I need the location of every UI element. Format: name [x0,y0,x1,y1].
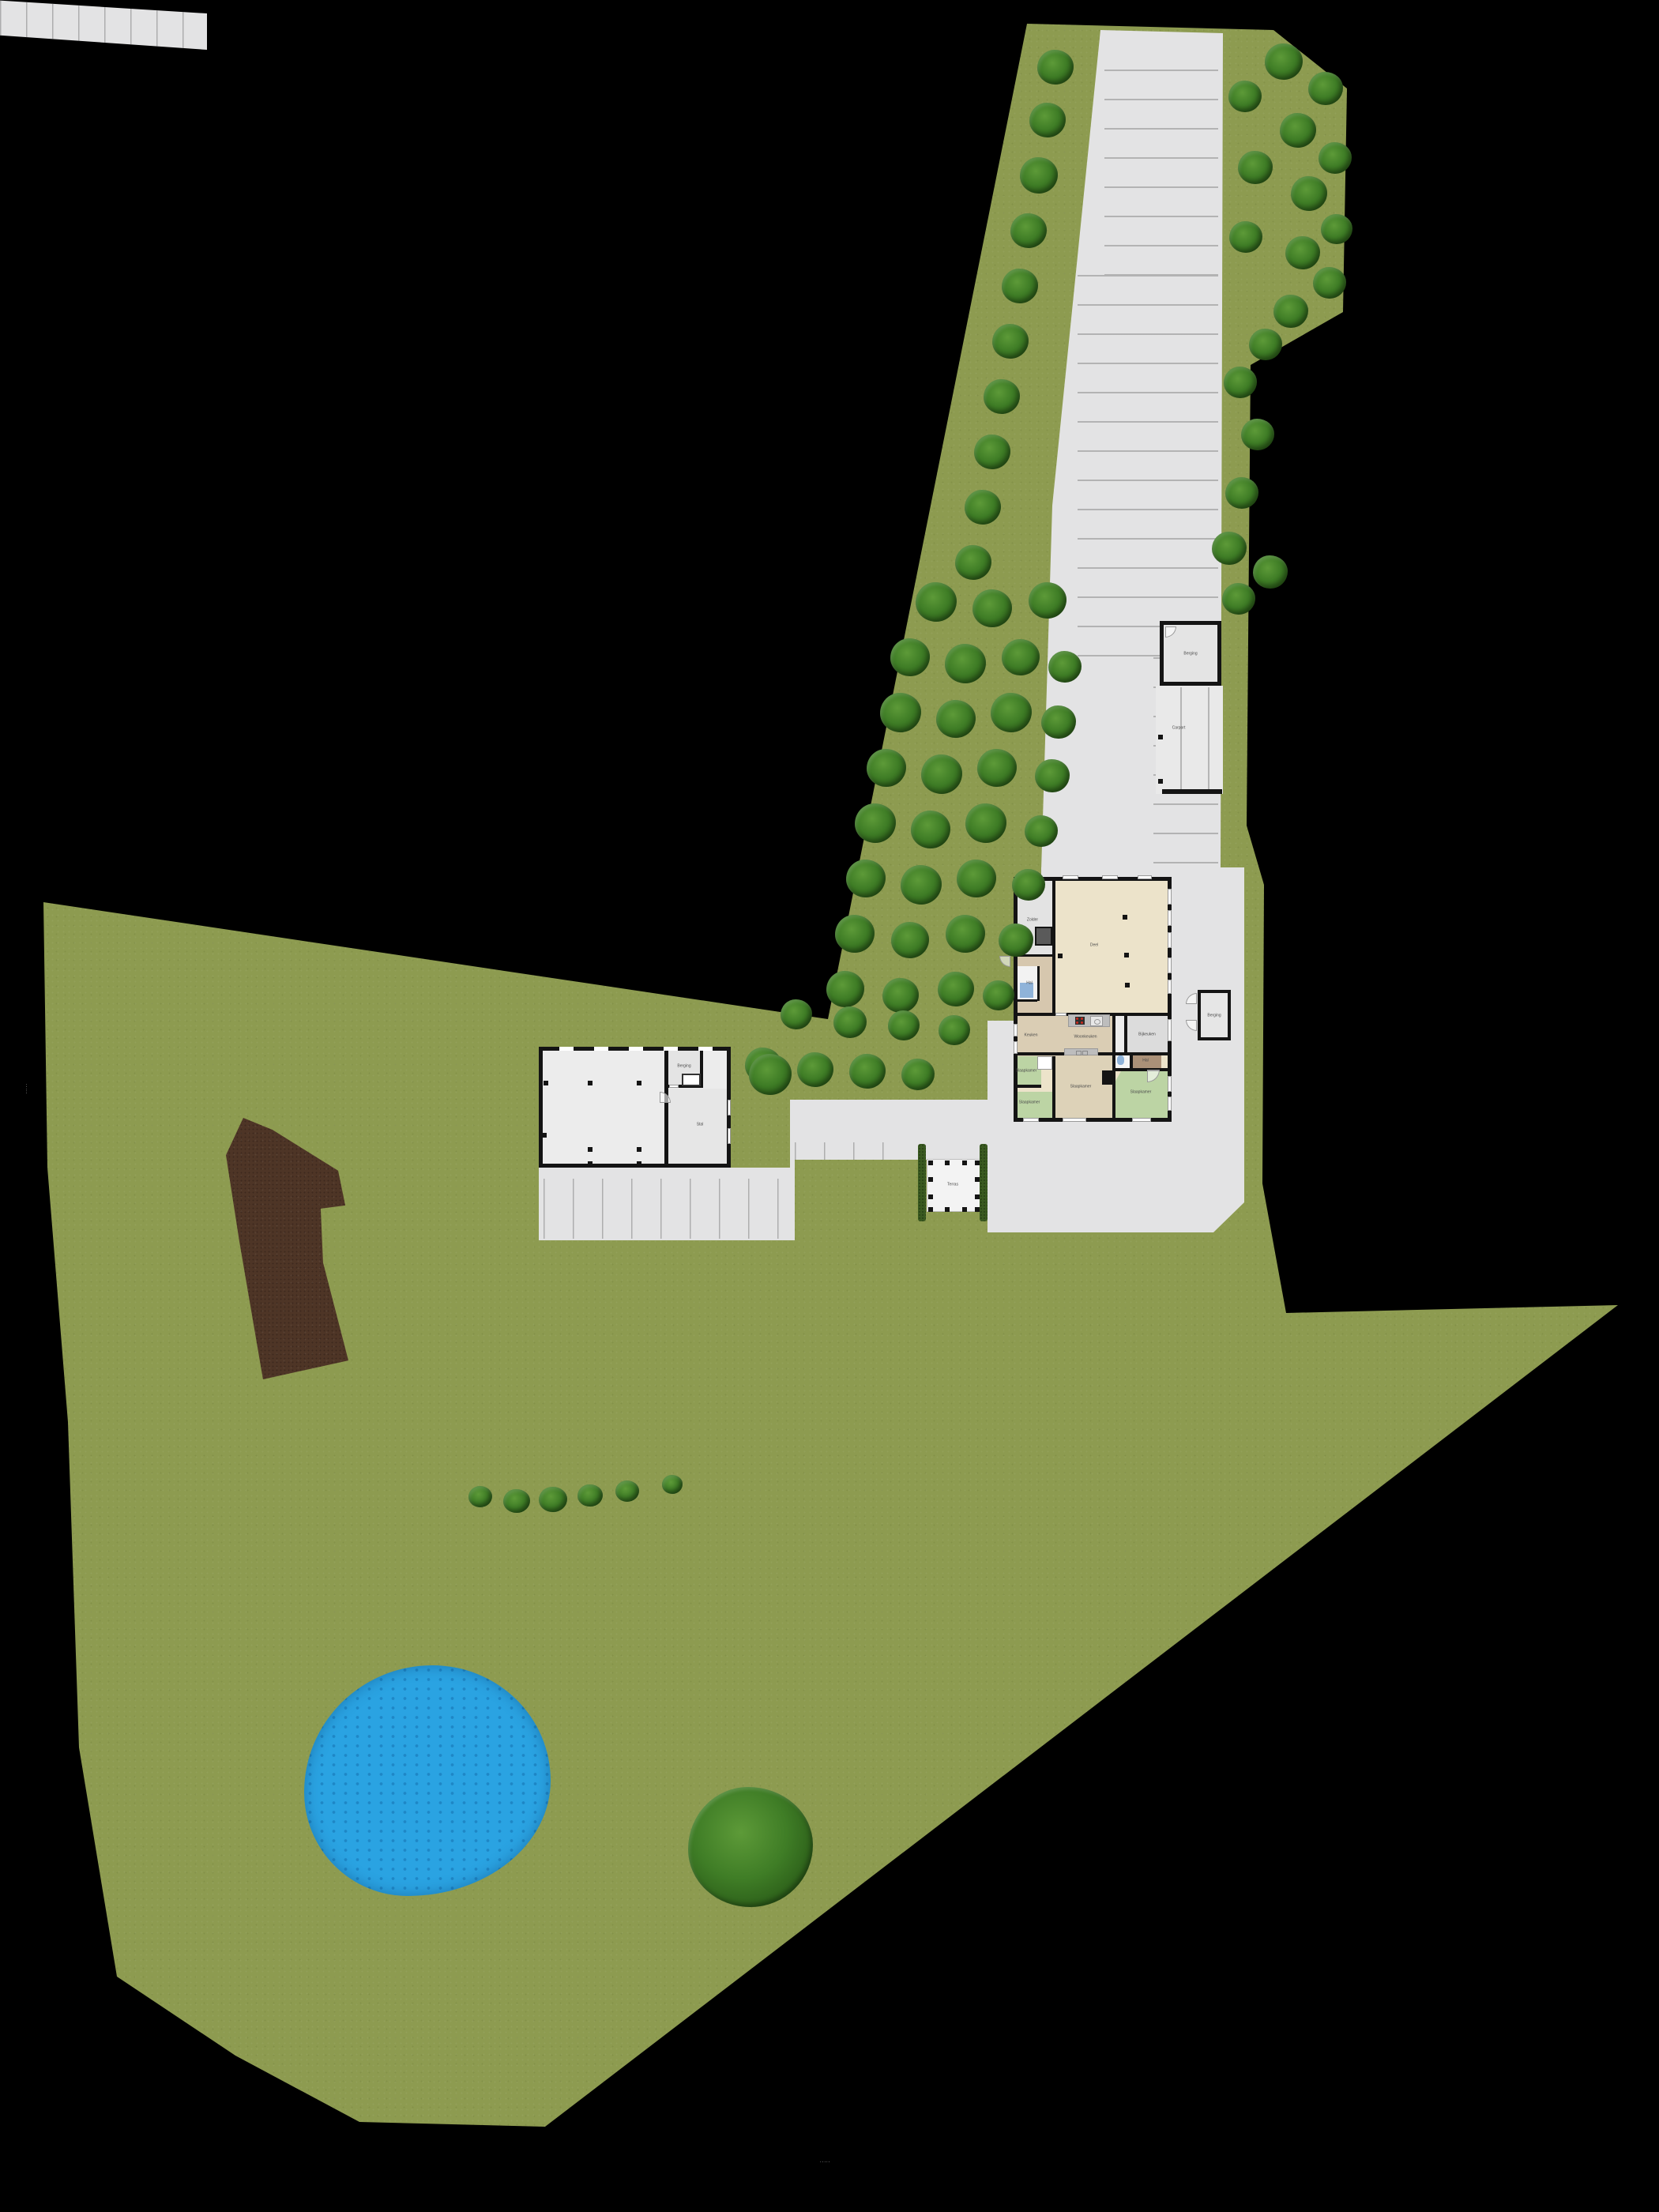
tree-icon [1319,142,1352,174]
tree-icon [1002,639,1040,675]
window [1063,875,1078,879]
tree-icon [1010,213,1047,248]
outbuilding-label: Berging [1207,1014,1221,1018]
house-wall [1115,1068,1168,1071]
garage-door-arc [1165,626,1176,638]
bush-icon [615,1480,639,1502]
post-icon [637,1161,641,1166]
tree-icon [901,1059,935,1090]
pergola-label: Terras [947,1183,958,1187]
room-label-bed-c: Slaapkamer [1070,1085,1092,1089]
carport-divider [1180,687,1182,792]
post-icon [544,1081,548,1085]
tree-icon [1041,705,1076,739]
bush-icon [468,1486,492,1507]
barn-closet [682,1074,701,1086]
tree-icon [974,434,1010,469]
tree-icon [936,700,976,738]
tree-icon [957,860,996,897]
tree-icon [846,860,886,897]
room-label-hall: Hal [1026,982,1033,986]
house-wall [1112,1014,1115,1056]
tree-icon [999,924,1033,957]
barn-building [539,1047,731,1168]
barn-window [728,1100,731,1115]
barn-large-label: Stal [697,1123,704,1127]
tree-icon [1035,759,1070,792]
post-icon [975,1177,980,1182]
post-icon [928,1194,933,1199]
door-gap [1055,1013,1066,1016]
post-icon [1058,954,1063,958]
tree-icon [977,749,1017,787]
tree-icon [965,490,1001,525]
tree-icon [1241,419,1274,450]
room-label-scullery: Bijkeuken [1138,1033,1156,1037]
driveway-parking-lines [1104,70,1218,275]
post-icon [928,1177,933,1182]
tree-icon [1313,267,1346,299]
house-wall [1112,1053,1115,1118]
carport [1156,686,1223,794]
carport-divider [1208,687,1209,792]
tree-icon [955,545,991,580]
tree-icon [749,1054,792,1095]
window [1014,1041,1018,1054]
post-icon [928,1207,933,1212]
window [1168,1019,1172,1041]
tree-icon [1265,43,1303,80]
tree-icon [890,638,930,676]
room-label-kitchen-left: Keuken [1025,1034,1038,1038]
tree-icon [1225,477,1258,509]
post-icon [962,1207,967,1212]
house-wall [1018,999,1037,1002]
kitchen-counter-2 [1064,1048,1098,1055]
tree-icon [1229,221,1262,253]
room-label-kitchen: Woonkeuken [1074,1036,1097,1040]
window [1063,1118,1086,1122]
tree-icon [1048,651,1082,683]
window [1138,875,1152,879]
tree-icon [1012,869,1045,901]
tree-icon [1273,295,1308,328]
window [1168,1097,1172,1111]
kitchen-counter [1068,1014,1110,1027]
tree-icon [911,811,950,848]
tree-icon [938,972,974,1006]
post-icon [945,1161,950,1165]
house-wall [1124,1014,1127,1052]
stepping-path [0,0,207,50]
house-wall [1052,881,1055,1014]
window [1102,875,1118,879]
post-icon [1125,983,1130,987]
window [1168,932,1172,948]
house-wall [1052,1056,1055,1118]
tree-icon [891,922,929,958]
house-wall [1037,966,1040,1001]
tree-icon [1280,113,1316,148]
tree-icon [835,915,875,953]
toilet-icon [1117,1055,1124,1065]
tree-icon [1291,176,1327,211]
tree-icon [826,971,864,1007]
tree-icon [849,1054,886,1089]
tree-icon [1212,532,1247,565]
post-icon [945,1207,950,1212]
tree-icon [1253,555,1288,589]
tree-icon [1025,815,1058,847]
tree-icon [1020,157,1058,194]
barn-door-gap [669,1085,679,1088]
post-icon [1158,735,1163,739]
post-icon [1158,779,1163,784]
bush-icon [662,1475,683,1493]
tree-icon [946,915,985,953]
house-wall [1018,1085,1041,1088]
room-label-bed-l2: Slaapkamer [1019,1101,1040,1105]
room-label-hall2: Hal [1142,1059,1149,1063]
post-icon [588,1081,592,1085]
room-label-bed-r: Slaapkamer [1130,1091,1152,1095]
tree-icon [921,754,962,794]
tree-icon [1029,103,1066,137]
post-icon [975,1161,980,1165]
window [1168,1076,1172,1092]
tree-icon [901,865,942,905]
tree-icon [1228,81,1262,112]
driveway-parking-lines [1078,275,1218,657]
tree-icon [1029,582,1066,619]
tree-icon [972,589,1012,627]
tree-icon [880,693,921,732]
window [1168,910,1172,926]
room-label-deel: Deel [1090,944,1098,948]
apron-parking-lines [544,1179,795,1239]
post-icon [637,1081,641,1085]
tree-icon [1222,583,1255,615]
post-icon [975,1194,980,1199]
window [1132,1118,1151,1122]
post-icon [1124,953,1129,957]
tree-icon [833,1006,867,1038]
window [1014,1024,1018,1036]
window [1023,1118,1039,1122]
tree-icon [1285,236,1320,269]
tree-icon [1224,367,1257,398]
fireplace [1035,927,1052,946]
tree-icon [855,803,896,843]
tree-icon [1037,50,1074,85]
tree-icon [1308,72,1343,105]
post-icon [928,1161,933,1165]
tree-icon [965,803,1006,843]
chimney-block [1102,1070,1112,1085]
tree-icon [945,644,986,683]
post-icon [588,1161,592,1166]
carport-back-wall [1162,789,1222,794]
tree-icon [1321,214,1352,244]
tree-icon [688,1787,813,1907]
post-icon [542,1133,547,1138]
barn-window [728,1128,731,1144]
post-icon [962,1161,967,1165]
room-label-attic: Zolder [1027,919,1038,923]
tree-icon [991,693,1032,732]
tree-icon [1002,269,1038,303]
hedge-right [980,1144,987,1221]
window [1168,980,1172,994]
post-icon [1123,915,1127,920]
window [1168,957,1172,973]
main-house [1014,877,1172,1122]
closet [1037,1056,1052,1070]
stove-icon [1075,1017,1085,1025]
post-icon [975,1207,980,1212]
post-icon [637,1147,641,1152]
site-plan-canvas: Terras Berging Stal Berging Carport [0,0,1659,2212]
watermark-left: ····· [24,1084,28,1094]
tree-icon [882,978,919,1013]
tree-icon [992,324,1029,359]
house-wall [1130,1053,1133,1068]
post-icon [588,1147,592,1152]
tree-icon [797,1052,833,1087]
tree-icon [867,749,906,787]
watermark-bottom: ····· [820,2160,830,2165]
room-bed-l2 [1018,1092,1052,1118]
hedge-left [918,1144,926,1221]
tree-icon [1249,329,1282,360]
tree-icon [984,379,1020,414]
garage-label: Berging [1183,653,1197,656]
carport-label: Carport [1172,727,1186,731]
barn-small-label: Berging [677,1065,690,1069]
sink-icon [1090,1016,1103,1026]
tree-icon [916,582,957,622]
window [1168,889,1172,905]
room-label-bed-l1: Slaapkamer [1016,1070,1037,1074]
tree-icon [1238,151,1273,184]
band-parking-ticks [795,1142,896,1160]
